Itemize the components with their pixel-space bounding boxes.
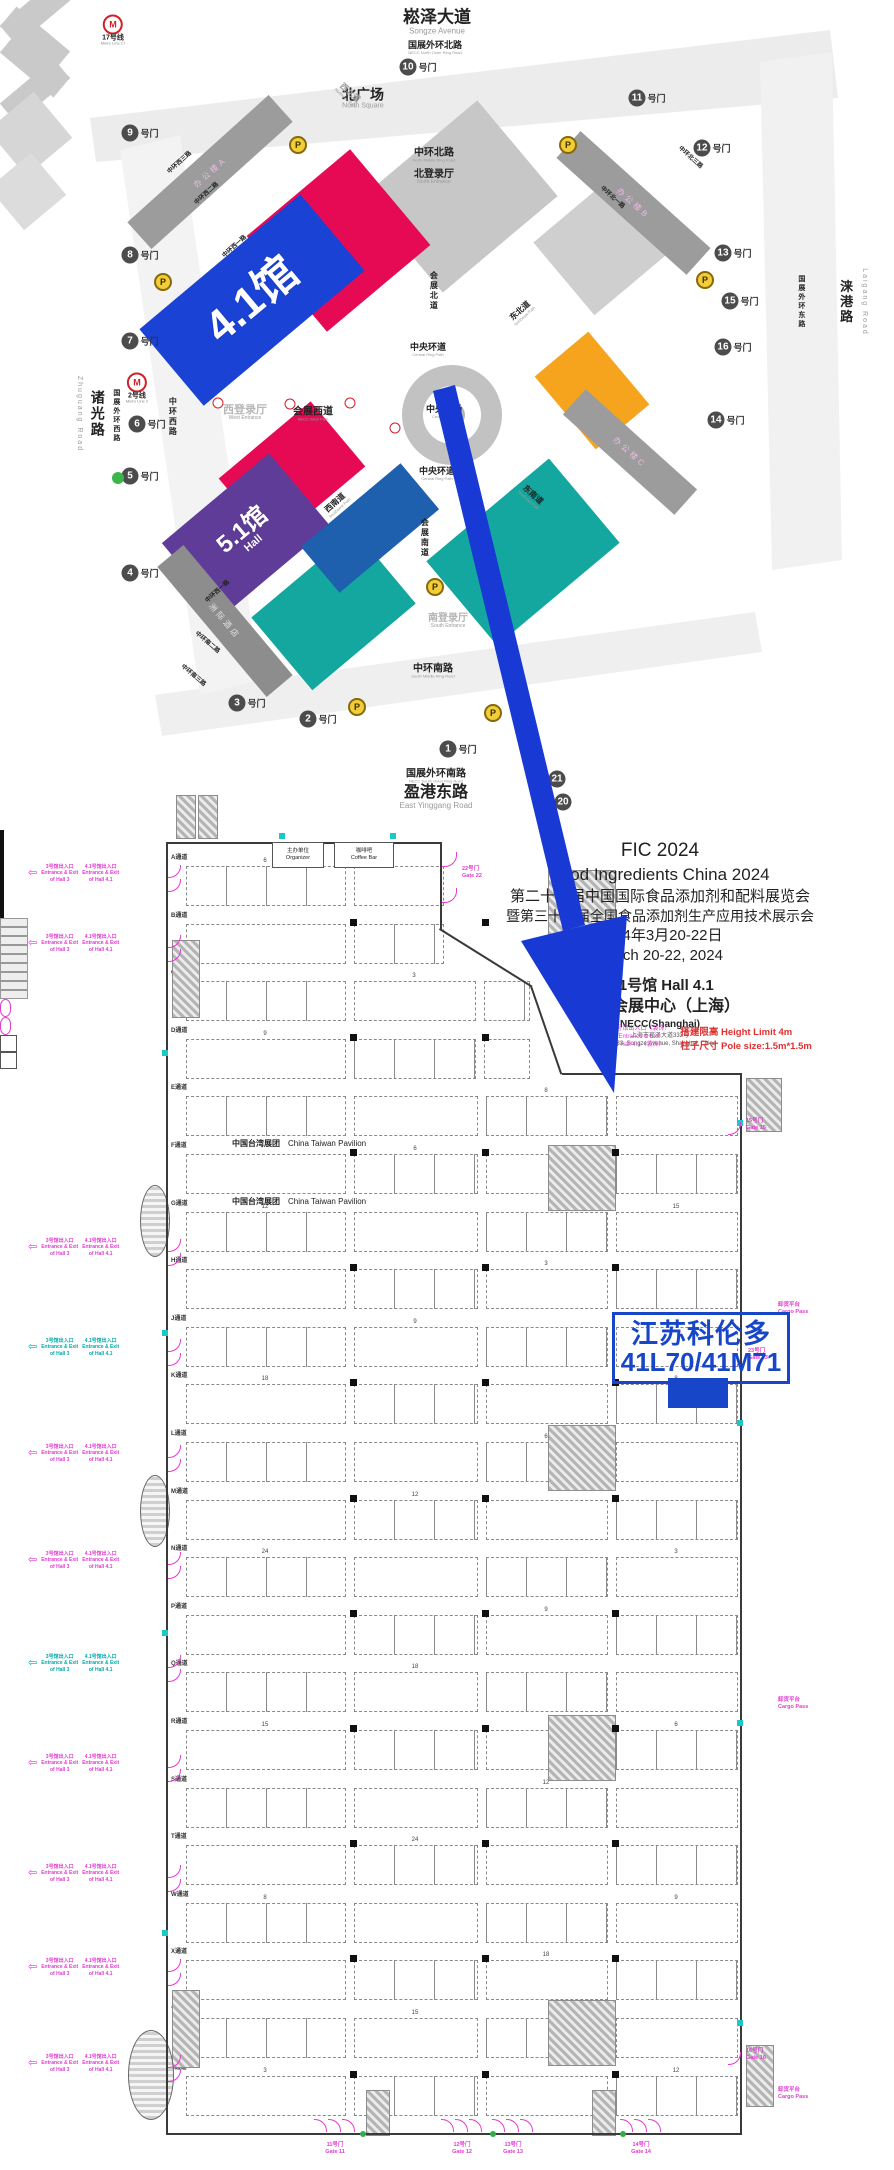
booth-block xyxy=(486,1212,608,1252)
gate-9: 9号门 xyxy=(121,125,158,142)
booth-block xyxy=(186,1384,346,1424)
booth-block xyxy=(486,1672,608,1712)
booth-dimension: 18 xyxy=(262,1376,269,1382)
escalator xyxy=(592,2090,616,2136)
gate-suffix: 号门 xyxy=(140,249,158,262)
gate-5: 5号门 xyxy=(121,468,158,485)
door-arc xyxy=(455,2119,468,2132)
entrance-text-line: Entrance & Exit xyxy=(82,1344,119,1350)
gate-suffix: 号门 xyxy=(140,567,158,580)
gate-suffix: 号门 xyxy=(712,142,730,155)
map-label: 崧泽大道Songze Avenue xyxy=(403,8,471,35)
cargo-step xyxy=(0,918,28,927)
gate-16: 16号门 xyxy=(714,339,751,356)
entrance-text-line: of Hall 3 xyxy=(41,1564,78,1570)
gate-number-circle: 10 xyxy=(399,59,416,76)
booth-block xyxy=(486,1557,608,1597)
gate-label-en: Gate 22 xyxy=(462,873,482,880)
right-gate-label: 16号门Gate 16 xyxy=(746,2048,766,2061)
entrance-text-line: Entrance & Exit xyxy=(41,1964,78,1970)
entrance-text-line: Entrance & Exit xyxy=(82,940,119,946)
cargo-pass-label: 卸货平台Cargo Pass xyxy=(778,2087,808,2100)
booth-block xyxy=(354,1615,478,1655)
wall-marker-cyan xyxy=(737,1420,743,1426)
entrance-text-line: Entrance & Exit xyxy=(82,1244,119,1250)
title-dates-cn: 2024年3月20-22日 xyxy=(432,926,888,946)
cargo-step xyxy=(0,990,28,999)
door-arc xyxy=(168,879,181,892)
door-arc xyxy=(168,1959,181,1972)
booth-block xyxy=(186,1039,346,1079)
exit-arrow-icon: ⇦ xyxy=(28,1555,37,1566)
gate-suffix: 号门 xyxy=(147,418,165,431)
booth-dimension: 8 xyxy=(544,1088,547,1094)
exit-arrow-icon: ⇦ xyxy=(28,1962,37,1973)
booth-block xyxy=(616,1788,738,1828)
entrance-text-line: Entrance & Exit xyxy=(41,1344,78,1350)
booth-block xyxy=(186,866,346,906)
gate-label-en: Gate 13 xyxy=(497,2149,529,2156)
entrance-text-block: 3号馆出入口Entrance & Exitof Hall 3 xyxy=(41,1864,78,1883)
entrance-text-block: 4.1号馆出入口Entrance & Exitof Hall 4.1 xyxy=(82,1864,119,1883)
aisle-label: K通道 xyxy=(171,1370,187,1379)
pillar xyxy=(612,1955,619,1962)
door-arc xyxy=(634,2119,647,2132)
aisle-label: X通道 xyxy=(171,1946,187,1955)
pillar xyxy=(350,1264,357,1271)
gate-suffix: 号门 xyxy=(647,92,665,105)
map-label: Laigang Road xyxy=(860,268,868,336)
exhibitor-name: 江苏科伦多 xyxy=(631,1320,771,1348)
road-name-en: South Middle Ring Road xyxy=(411,674,454,678)
pillar xyxy=(612,1264,619,1271)
cargo-step xyxy=(0,981,28,990)
booth-block xyxy=(186,2076,346,2116)
hall-entrance-label-row: ⇦3号馆出入口Entrance & Exitof Hall 34.1号馆出入口E… xyxy=(28,1864,164,1883)
door-arc xyxy=(168,1552,181,1565)
corner-box xyxy=(0,1035,17,1052)
metro-logo-icon: M xyxy=(103,15,123,35)
metro-icon: M17号线Metro Line 17 xyxy=(101,15,125,46)
booth-block xyxy=(354,1730,478,1770)
parking-icon: P xyxy=(348,698,366,716)
gate-suffix: 号门 xyxy=(140,335,158,348)
exhibition-title-block: FIC 2024 Food Ingredients China 2024 第二十… xyxy=(432,838,888,1048)
gate-number-circle: 16 xyxy=(714,339,731,356)
booth-block xyxy=(186,1269,346,1309)
booth-dimension: 3 xyxy=(674,1549,677,1555)
booth-block xyxy=(616,1615,738,1655)
road-name-en: Central Ring Path xyxy=(419,477,455,481)
entrance-text-block: 4.1号馆出入口Entrance & Exitof Hall 4.1 xyxy=(82,1654,119,1673)
pillar xyxy=(612,1610,619,1617)
pillar xyxy=(350,1495,357,1502)
booth-block xyxy=(354,1557,478,1597)
booth-dimension: 24 xyxy=(262,1549,269,1555)
gate-number-circle: 21 xyxy=(549,771,566,788)
gate-number-circle: 13 xyxy=(714,245,731,262)
door-arc xyxy=(648,2119,661,2132)
aisle-label: A通道 xyxy=(171,852,187,861)
road-name: Zhuguang Road xyxy=(75,376,83,452)
parking-icon: P xyxy=(426,578,444,596)
booth-block xyxy=(354,1154,478,1194)
exit-arrow-icon: ⇦ xyxy=(28,1242,37,1253)
road-name-en: Songze Avenue xyxy=(403,27,471,36)
pillar xyxy=(350,2071,357,2078)
gate-label-cn: 14号门 xyxy=(625,2142,657,2149)
entrance-text-block: 3号馆出入口Entrance & Exitof Hall 3 xyxy=(41,2054,78,2073)
title-dates-en: March 20-22, 2024 xyxy=(432,946,888,966)
gate-number-circle: 11 xyxy=(628,90,645,107)
entrance-text-block: 3号馆出入口Entrance & Exitof Hall 3 xyxy=(41,864,78,883)
pavilion-cn: 中国台湾展团 xyxy=(232,1197,280,1206)
cargo-label-cn: 卸货平台 xyxy=(778,1302,808,1309)
booth-block xyxy=(486,1500,608,1540)
booth-block xyxy=(186,1730,346,1770)
booth-block xyxy=(354,1327,478,1367)
booth-block xyxy=(186,1154,346,1194)
booth-block xyxy=(354,1212,478,1252)
metro-logo-icon: M xyxy=(127,373,147,393)
entrance-text-block: 4.1号馆出入口Entrance & Exitof Hall 4.1 xyxy=(82,1551,119,1570)
gate-label-cn: 12号门 xyxy=(446,2142,478,2149)
hall-entrance-label-row: ⇦3号馆出入口Entrance & Exitof Hall 34.1号馆出入口E… xyxy=(28,2054,164,2073)
aisle-label: M通道 xyxy=(171,1486,188,1495)
entrance-text-block: 3号馆出入口Entrance & Exitof Hall 3 xyxy=(41,1338,78,1357)
parking-icon: P xyxy=(154,273,172,291)
map-label: 国展外环西路 xyxy=(112,389,120,443)
booth-dimension: 18 xyxy=(543,1952,550,1958)
room-Organizer: 主办单位Organizer xyxy=(272,842,324,868)
escalator xyxy=(198,795,218,839)
exit-arrow-icon: ⇦ xyxy=(28,868,37,879)
road-name: 国展外环东路 xyxy=(797,275,805,329)
map-label: 中央广场Central Plaza xyxy=(426,405,462,419)
door-arc xyxy=(168,2069,181,2082)
pillar xyxy=(482,1610,489,1617)
parking-icon: P xyxy=(484,704,502,722)
entrance-text-line: of Hall 3 xyxy=(41,1251,78,1257)
entrance-text-line: Entrance & Exit xyxy=(41,1557,78,1563)
door-arc xyxy=(441,2119,454,2132)
aisle-label: P通道 xyxy=(171,1601,187,1610)
hall-entrance-label-row: ⇦3号馆出入口Entrance & Exitof Hall 34.1号馆出入口E… xyxy=(28,1551,164,1570)
gate-2: 2号门 xyxy=(299,711,336,728)
map-label: 会展北道 xyxy=(429,271,438,311)
booth-block xyxy=(616,1500,738,1540)
road-name: Laigang Road xyxy=(860,268,868,336)
cargo-pass-label: 卸货平台Cargo Pass xyxy=(778,1697,808,1710)
entrance-text-line: of Hall 4.1 xyxy=(82,947,119,953)
entrance-text-line: Entrance & Exit xyxy=(82,1964,119,1970)
pillar xyxy=(612,1840,619,1847)
booth-block xyxy=(486,1096,608,1136)
gate-suffix: 号门 xyxy=(726,414,744,427)
metro-line-name-en: Metro Line 17 xyxy=(101,42,125,46)
entrance-text-line: Entrance & Exit xyxy=(41,1760,78,1766)
entrance-text-line: of Hall 3 xyxy=(41,1457,78,1463)
road-name-en: NECC West Path xyxy=(293,417,333,421)
road-name-en: Central Ring Path xyxy=(410,353,446,357)
booth-block xyxy=(616,2018,738,2058)
gate-13: 13号门 xyxy=(714,245,751,262)
hall-4-1-floor-plan: FIC 2024 Food Ingredients China 2024 第二十… xyxy=(0,830,894,2170)
booth-block xyxy=(354,1672,478,1712)
gate-6: 6号门 xyxy=(128,416,165,433)
map-label: 北登录厅North Entrance xyxy=(414,169,454,186)
entrance-text-line: Entrance & Exit xyxy=(41,1660,78,1666)
booth-block xyxy=(186,981,346,1021)
gate-suffix: 号门 xyxy=(247,697,265,710)
bottom-gate-label: 11号门Gate 11 xyxy=(319,2142,351,2155)
entrance-text-line: Entrance & Exit xyxy=(82,1660,119,1666)
cargo-label-en: Cargo Pass xyxy=(778,1704,808,1711)
door-arc xyxy=(620,2119,633,2132)
cargo-step xyxy=(0,927,28,936)
pillar xyxy=(350,1955,357,1962)
gate-12: 12号门 xyxy=(693,140,730,157)
road-name: 会展南道 xyxy=(420,518,429,558)
bottom-gate-label: 12号门Gate 12 xyxy=(446,2142,478,2155)
door-arc xyxy=(168,1239,181,1252)
gate-1: 1号门 xyxy=(439,741,476,758)
map-label: 国展外环北路NECC North Outer Ring Road xyxy=(408,41,462,55)
hall-entrance-label-row: ⇦3号馆出入口Entrance & Exitof Hall 34.1号馆出入口E… xyxy=(28,1754,164,1773)
entrance-text-line: of Hall 3 xyxy=(41,1971,78,1977)
door-arc xyxy=(314,2119,327,2132)
booth-block xyxy=(186,2018,346,2058)
map-label: 盈港东路East Yinggang Road xyxy=(400,784,473,810)
booth-block xyxy=(186,1903,346,1943)
map-label: 中央环道Central Ring Path xyxy=(410,343,446,357)
escalator xyxy=(176,795,196,839)
highlighted-booth-label: 江苏科伦多 41L70/41M71 xyxy=(612,1312,790,1384)
entrance-text-line: Entrance & Exit xyxy=(41,2060,78,2066)
metro-line-name-en: Metro Line 2 xyxy=(126,400,148,404)
aisle-label: E通道 xyxy=(171,1082,187,1091)
escalator xyxy=(548,2000,616,2066)
entrance-text-line: Entrance & Exit xyxy=(82,2060,119,2066)
right-gate-label: 15号门Gate 15 xyxy=(746,1118,766,1131)
door-arc xyxy=(492,2119,505,2132)
pillar xyxy=(482,1264,489,1271)
booth-block xyxy=(354,1500,478,1540)
entrance-text-block: 4.1号馆出入口Entrance & Exitof Hall 4.1 xyxy=(82,1754,119,1773)
road-name: 国展外环西路 xyxy=(112,389,120,443)
booth-block xyxy=(186,1615,346,1655)
booth-dimension: 12 xyxy=(673,2068,680,2074)
booth-dimension: 6 xyxy=(413,1146,416,1152)
hall-entrance-label-row: ⇦3号馆出入口Entrance & Exitof Hall 34.1号馆出入口E… xyxy=(28,1958,164,1977)
entrance-text-line: Entrance & Exit xyxy=(41,1870,78,1876)
gate-number-circle: 9 xyxy=(121,125,138,142)
exit-arrow-icon: ⇦ xyxy=(28,1758,37,1769)
title-venue-cn: 国家会展中心（上海） xyxy=(432,996,888,1018)
map-label: 诸光路 xyxy=(89,390,104,438)
road-name: 会展北道 xyxy=(429,271,438,311)
gate-number-circle: 1 xyxy=(439,741,456,758)
map-label: 西登录厅West Entrance xyxy=(223,404,267,422)
booth-block xyxy=(354,1845,478,1885)
map-label: 国展外环东路 xyxy=(797,275,805,329)
road-name: 诸光路 xyxy=(89,390,104,438)
escalator xyxy=(548,1425,616,1491)
exit-arrow-icon: ⇦ xyxy=(28,1868,37,1879)
gate-label-en: Gate 12 xyxy=(446,2149,478,2156)
entrance-text-line: Entrance & Exit xyxy=(41,870,78,876)
entrance-note: 4.1号馆出入口（装饰） Entrance & Exit of Hall 4.1… xyxy=(608,1026,670,1049)
pillar xyxy=(482,1379,489,1386)
entrance-text-line: of Hall 3 xyxy=(41,1667,78,1673)
aisle-label: T通道 xyxy=(171,1831,187,1840)
booth-block xyxy=(354,2018,478,2058)
booth-dimension: 15 xyxy=(262,1722,269,1728)
gate-10: 10号门 xyxy=(399,59,436,76)
entrance-text-block: 4.1号馆出入口Entrance & Exitof Hall 4.1 xyxy=(82,934,119,953)
entrance-text-line: Entrance & Exit xyxy=(82,1870,119,1876)
door-symbol xyxy=(0,1017,11,1035)
booth-block xyxy=(186,1096,346,1136)
gate-label-en: Gate 16 xyxy=(746,2055,766,2062)
pillar xyxy=(350,1034,357,1041)
gate-label-en: Gate 11 xyxy=(319,2149,351,2156)
entrance-text-block: 4.1号馆出入口Entrance & Exitof Hall 4.1 xyxy=(82,1958,119,1977)
entrance-text-block: 3号馆出入口Entrance & Exitof Hall 3 xyxy=(41,1958,78,1977)
gate-number-circle: 5 xyxy=(121,468,138,485)
entrance-text-block: 4.1号馆出入口Entrance & Exitof Hall 4.1 xyxy=(82,2054,119,2073)
booth-block xyxy=(186,1672,346,1712)
entrance-text-line: of Hall 4.1 xyxy=(82,1351,119,1357)
aisle-label: D通道 xyxy=(171,1025,187,1034)
road-name: 涞港路 xyxy=(838,280,852,325)
hall-5-1-label: 5.1馆 xyxy=(213,502,272,557)
gate-label-cn: 11号门 xyxy=(319,2142,351,2149)
gate-number-circle: 12 xyxy=(693,140,710,157)
door-arc xyxy=(168,1755,181,1768)
entrance-text-block: 4.1号馆出入口Entrance & Exitof Hall 4.1 xyxy=(82,1338,119,1357)
gate-label-cn: 13号门 xyxy=(497,2142,529,2149)
door-arc xyxy=(168,1973,181,1986)
map-label: 南登录厅South Entrance xyxy=(428,613,468,630)
parking-icon: P xyxy=(559,136,577,154)
gate-label-cn: 22号门 xyxy=(462,866,482,873)
door-arc xyxy=(168,1865,181,1878)
booth-block xyxy=(616,2076,738,2116)
door-arc xyxy=(168,1339,181,1352)
booth-block xyxy=(354,1442,478,1482)
gate-22-label: 22号门Gate 22 xyxy=(462,866,482,879)
room-name-cn: 主办单位 xyxy=(273,848,323,855)
wall-top-right xyxy=(562,1073,742,1075)
exhibition-location-page: 4.1馆5.1馆Hall办公楼A办公楼B办公楼C洲际酒店崧泽大道Songze A… xyxy=(0,0,894,2170)
hall-entrance-label-row: ⇦3号馆出入口Entrance & Exitof Hall 34.1号馆出入口E… xyxy=(28,1444,164,1463)
cargo-label-en: Cargo Pass xyxy=(778,2094,808,2101)
entrance-text-block: 4.1号馆出入口Entrance & Exitof Hall 4.1 xyxy=(82,1238,119,1257)
entrance-text-line: of Hall 4.1 xyxy=(82,1767,119,1773)
gate-suffix: 号门 xyxy=(140,470,158,483)
gate-suffix: 号门 xyxy=(318,713,336,726)
booth-block xyxy=(354,1384,478,1424)
wall-left xyxy=(166,842,168,2135)
title-english: Food Ingredients China 2024 xyxy=(432,864,888,887)
booth-block xyxy=(486,1615,608,1655)
entrance-text-line: of Hall 4.1 xyxy=(82,1667,119,1673)
door-arc xyxy=(328,2119,341,2132)
entrance-text-block: 3号馆出入口Entrance & Exitof Hall 3 xyxy=(41,934,78,953)
booth-block xyxy=(486,2076,608,2116)
map-label: 中环北路North Middle Ring Road xyxy=(413,147,456,162)
pillar xyxy=(350,1379,357,1386)
gate-suffix: 号门 xyxy=(740,295,758,308)
booth-block xyxy=(616,1154,738,1194)
wall-marker-cyan xyxy=(162,1330,168,1336)
booth-block xyxy=(354,866,444,906)
pillar xyxy=(612,1149,619,1156)
escalator xyxy=(548,1145,616,1211)
gate-4: 4号门 xyxy=(121,565,158,582)
wall-right xyxy=(740,1073,742,2135)
door-arc xyxy=(168,865,181,878)
cargo-step xyxy=(0,963,28,972)
road-name: 中环西路 xyxy=(168,397,177,437)
booth-block xyxy=(354,1788,478,1828)
booth-numbers: 41L70/41M71 xyxy=(621,1349,781,1376)
booth-block xyxy=(616,1845,738,1885)
aisle-label: J通道 xyxy=(171,1313,186,1322)
pillar xyxy=(482,1725,489,1732)
booth-dimension: 9 xyxy=(263,1031,266,1037)
gate-suffix: 号门 xyxy=(418,61,436,74)
exit-arrow-icon: ⇦ xyxy=(28,1658,37,1669)
title-fic: FIC 2024 xyxy=(432,838,888,864)
gate-15: 15号门 xyxy=(721,293,758,310)
map-label: 涞港路 xyxy=(838,280,852,325)
pavilion-en: China Taiwan Pavilion xyxy=(288,1197,366,1206)
entrance-text-line: Entrance & Exit xyxy=(41,940,78,946)
map-label: 中环西路 xyxy=(168,397,177,437)
entrance-text-line: Entrance & Exit xyxy=(82,1557,119,1563)
hall-entrance-label-row: ⇦3号馆出入口Entrance & Exitof Hall 34.1号馆出入口E… xyxy=(28,1338,164,1357)
gate-suffix: 号门 xyxy=(458,743,476,756)
door-arc xyxy=(520,2119,533,2132)
booth-dimension: 9 xyxy=(544,1607,547,1613)
parking-icon: P xyxy=(696,271,714,289)
room-name-en: Organizer xyxy=(273,855,323,862)
road-name-en: South Entrance xyxy=(428,624,468,630)
entrance-text-line: Entrance & Exit xyxy=(41,1244,78,1250)
wall-marker-cyan xyxy=(390,833,396,839)
title-cn-line1: 第二十七届中国国际食品添加剂和配料展览会 xyxy=(432,887,888,907)
booth-dimension: 15 xyxy=(673,1204,680,1210)
wall-marker-cyan xyxy=(737,1720,743,1726)
door-arc xyxy=(469,2119,482,2132)
door-arc xyxy=(342,2119,355,2132)
pillar xyxy=(612,1495,619,1502)
pavilion-cn: 中国台湾展团 xyxy=(232,1139,280,1148)
entrance-text-line: of Hall 3 xyxy=(41,877,78,883)
hall-entrance-label-row: ⇦3号馆出入口Entrance & Exitof Hall 34.1号馆出入口E… xyxy=(28,864,164,883)
entrance-text-line: Entrance & Exit xyxy=(41,1450,78,1456)
metro-icon: M2号线Metro Line 2 xyxy=(126,373,148,404)
metro-mini-icon xyxy=(390,423,401,434)
booth-dimension: 24 xyxy=(412,1837,419,1843)
gate-number-circle: 3 xyxy=(228,695,245,712)
booth-block xyxy=(486,1327,608,1367)
gate-20: 20 xyxy=(555,794,572,811)
road-name: 崧泽大道 xyxy=(403,8,471,27)
entrance-text-line: of Hall 3 xyxy=(41,1351,78,1357)
